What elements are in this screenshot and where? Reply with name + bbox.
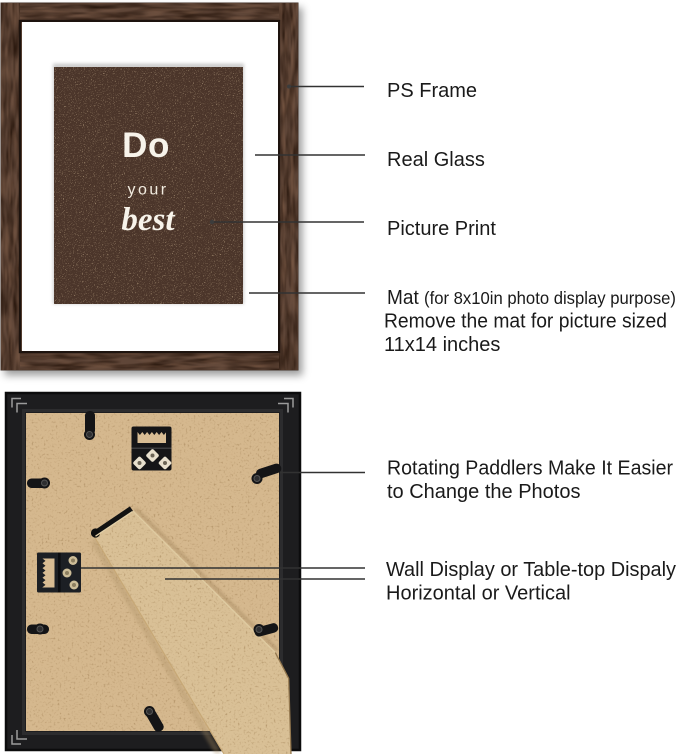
svg-text:Remove the mat for picture siz: Remove the mat for picture sized	[384, 311, 667, 333]
svg-text:best: best	[121, 202, 175, 238]
svg-text:to Change the Photos: to Change the Photos	[387, 481, 580, 503]
svg-text:Horizontal or Vertical: Horizontal or Vertical	[386, 583, 571, 605]
svg-text:Wall Display or Table-top Disp: Wall Display or Table-top Dispaly	[386, 559, 676, 581]
svg-text:PS Frame: PS Frame	[387, 80, 477, 102]
svg-text:Do: Do	[122, 126, 170, 165]
svg-text:your: your	[127, 182, 168, 199]
svg-text:Rotating Paddlers Make It Easi: Rotating Paddlers Make It Easier	[387, 458, 673, 480]
svg-text:Picture Print: Picture Print	[387, 218, 496, 240]
svg-text:Mat (for 8x10in photo display: Mat (for 8x10in photo display purpose)	[387, 287, 676, 309]
svg-text:Real Glass: Real Glass	[387, 149, 485, 171]
svg-text:11x14 inches: 11x14 inches	[384, 334, 500, 356]
